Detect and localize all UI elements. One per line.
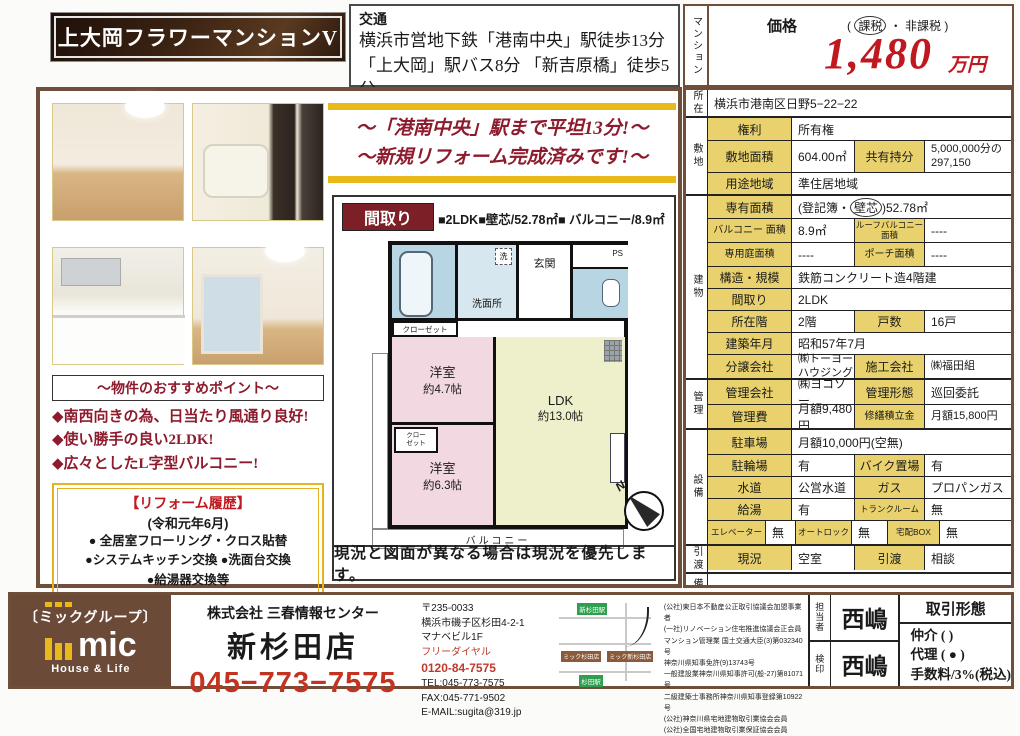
banner-line-1: 〜「港南中央」駅まで平坦13分!〜 [328, 115, 676, 144]
exclusive-area-value: (登記簿・壁芯)52.78㎡ [792, 196, 1011, 218]
deliverybox-value: 無 [940, 521, 1011, 544]
property-type-vertical-label: マンション [685, 6, 709, 85]
point-item: ◆使い勝手の良い2LDK! [52, 429, 324, 452]
layout-value: 2LDK [792, 289, 1011, 310]
mgmt-type-value: 巡回委託 [925, 380, 1011, 404]
price-box: マンション 価格 ( 課税 ・ 非課税 ) 1,480 万円 [683, 4, 1014, 87]
gold-bar-bottom [328, 176, 676, 183]
closet-2-label: クロー [406, 432, 426, 440]
range-hood [61, 258, 121, 286]
rights-value: 所有権 [792, 118, 1011, 140]
kitchen-counter-icon [610, 433, 625, 483]
mgmt-type-label: 管理形態 [855, 380, 925, 404]
ceiling-light [265, 240, 305, 262]
transport-label: 交通 [359, 9, 670, 29]
main-content-frame: 〜物件のおすすめポイント〜 ◆南西向きの為、日当たり風通り良好! ◆使い勝手の良… [36, 87, 682, 588]
exclusive-area-label: 専有面積 [708, 196, 792, 218]
repair-value: 月額15,800円 [925, 405, 1011, 428]
trunk-label: トランクルーム [855, 499, 925, 520]
garden-value: ---- [792, 243, 855, 266]
staff-column: 担当者 西嶋 検印 西嶋 [808, 595, 901, 686]
land-area-value: 604.00㎡ [792, 141, 855, 172]
ldk-room: LDK 約13.0帖 [496, 337, 625, 525]
status-value: 空室 [792, 546, 855, 570]
catch-copy-banner: 〜「港南中央」駅まで平坦13分!〜 〜新規リフォーム完成済みです!〜 [328, 103, 676, 183]
bike-value: 有 [925, 455, 1011, 476]
deliverybox-label: 宅配BOX [888, 521, 940, 544]
floorplan-drawing: バルコニー 洗 洗面所 玄関 PS クローゼット 洋室 約4.7帖 クロー ゼッ… [372, 241, 642, 541]
parking-label: 駐車場 [708, 430, 792, 454]
delivery-value: 相談 [925, 546, 1011, 570]
license-list: (公社)東日本不動産公正取引協議会加盟事業者 (一社)リノベーション住宅推進協議… [658, 595, 808, 686]
laundry-spot: 洗 [495, 248, 512, 265]
price-value: 1,480 [824, 28, 933, 79]
bathroom-room [392, 245, 458, 321]
license-line: マンション管理業 国土交通大臣(3)第032340号 [664, 636, 806, 658]
section-label-land: 敷地 [686, 118, 708, 194]
address-line-1: 横浜市磯子区杉田4-2-1 [421, 617, 553, 632]
units-value: 16戸 [925, 311, 1011, 332]
structure-label: 構造・規模 [708, 267, 792, 288]
units-label: 戸数 [855, 311, 925, 332]
repair-label: 修繕積立金 [855, 405, 925, 428]
entrance-label: 玄関 [519, 255, 570, 271]
section-equipment: 設備 駐車場 月額10,000円(空無) 駐輪場 有 バイク置場 有 水道 公営… [686, 428, 1011, 544]
built-label: 建築年月 [708, 333, 792, 354]
section-label-management: 管理 [686, 380, 708, 428]
kitchen-counter [53, 315, 185, 364]
points-header: 〜物件のおすすめポイント〜 [52, 375, 324, 401]
company-cell: 株式会社 三春情報センター 新杉田店 045−773−7575 [171, 595, 415, 686]
seal-name: 西嶋 [831, 642, 899, 687]
mgmt-fee-label: 管理費 [708, 405, 792, 428]
closet-1: クローゼット [392, 321, 458, 337]
email-address: E-MAIL:sugita@319.jp [421, 706, 553, 721]
floorplan-caption: 現況と図面が異なる場合は現況を優先します。 [334, 545, 674, 579]
zoning-value: 準住居地域 [792, 173, 1011, 194]
mic-logo-icon [45, 630, 72, 660]
hotwater-value: 有 [792, 499, 855, 520]
map-store-sugita: ミック杉田店 [561, 651, 601, 662]
garden-label: 専用庭面積 [708, 243, 792, 266]
washroom-label: 洗面所 [458, 295, 516, 310]
license-line: (公社)神奈川県宅地建物取引業協会会員 [664, 714, 806, 725]
stove-icon [604, 340, 622, 362]
point-item: ◆広々としたL字型バルコニー! [52, 453, 324, 476]
roof-balcony-label: ルーフバルコニー 面積 [855, 219, 925, 242]
spec-table: 所在 横浜市港南区日野5−22−22 敷地 権利 所有権 敷地面積 604.00… [683, 87, 1014, 588]
toilet-room [570, 269, 628, 321]
share-label: 共有持分 [855, 141, 925, 172]
toilet-icon [602, 279, 620, 307]
group-name: 〔ミックグループ〕 [24, 607, 158, 627]
bedroom-1-name: 洋室 [429, 362, 455, 381]
balcony-area-label: バルコニー 面積 [708, 219, 792, 242]
access-map: 新杉田駅 ミック新杉田店 ミック杉田店 杉田駅 [555, 595, 658, 686]
bedroom-photo [192, 247, 324, 365]
license-line: (公社)東日本不動産公正取引協議会加盟事業者 [664, 602, 806, 624]
elevator-label: エレベーター [708, 521, 766, 544]
remarks-value [708, 574, 1011, 588]
reform-item: ●システムキッチン交換 ●洗面台交換 [60, 551, 316, 570]
builder-value: ㈱福田組 [925, 355, 1011, 378]
bedroom-1: 洋室 約4.7帖 [392, 337, 496, 425]
rights-label: 権利 [708, 118, 792, 140]
deal-type-header: 取引形態 [900, 595, 1011, 624]
recommend-points: 〜物件のおすすめポイント〜 ◆南西向きの為、日当たり風通り良好! ◆使い勝手の良… [52, 375, 324, 602]
parking-value: 月額10,000円(空無) [792, 430, 1011, 454]
status-label: 現況 [708, 546, 792, 570]
reform-item: ● 全居室フローリング・クロス貼替 [60, 532, 316, 551]
branch-phone: 045−773−7575 [171, 667, 415, 700]
postal-code: 〒235-0033 [421, 602, 553, 617]
price-unit: 万円 [948, 50, 986, 77]
deal-type-box: 取引形態 仲介 ( ) 代理 ( ● ) 手数料/3%(税込) [900, 595, 1011, 686]
trunk-value: 無 [925, 499, 1011, 520]
bathtub [203, 144, 269, 198]
section-building: 建物 専有面積 (登記簿・壁芯)52.78㎡ バルコニー 面積 8.9㎡ ルーフ… [686, 194, 1011, 378]
floor-label: 所在階 [708, 311, 792, 332]
living-room-photo [52, 103, 184, 221]
map-road [559, 671, 651, 673]
ps-label: PS [612, 249, 623, 258]
deal-fee: 手数料/3%(税込) [910, 665, 1011, 685]
deal-brokerage: 仲介 ( ) [910, 626, 1011, 646]
license-line: 一般建設業神奈川県知事許可(般-27)第81071号 [664, 669, 806, 691]
transport-line-1: 横浜市営地下鉄「港南中央」駅徒歩13分 [359, 29, 670, 54]
porch-value: ---- [925, 243, 1011, 266]
section-remarks: 備考 [686, 572, 1011, 588]
floorplan-spec: ■2LDK■壁芯/52.78㎡■ バルコニー/8.9㎡ [438, 209, 665, 228]
deal-agency: 代理 ( ● ) [910, 645, 1011, 665]
builder-label: 施工会社 [855, 355, 925, 378]
section-handover: 引渡 現況 空室 引渡 相談 [686, 544, 1011, 572]
ldk-size: 約13.0帖 [496, 408, 625, 424]
ceiling-light [125, 96, 165, 118]
staff-name: 西嶋 [831, 595, 899, 640]
built-value: 昭和57年7月 [792, 333, 1011, 354]
address-cell: 〒235-0033 横浜市磯子区杉田4-2-1 マナベビル1F フリーダイヤル … [415, 595, 555, 686]
property-title: 上大岡フラワーマンションV [54, 16, 342, 58]
reform-item: ●給湯器交換等 [60, 571, 316, 590]
section-location: 所在 横浜市港南区日野5−22−22 [686, 90, 1011, 116]
layout-label: 間取り [708, 289, 792, 310]
developer-label: 分譲会社 [708, 355, 792, 378]
mic-logo-dots [45, 602, 72, 607]
floorplan-walls: 洗 洗面所 玄関 PS クローゼット 洋室 約4.7帖 クロー ゼット 洋室 約… [388, 241, 628, 529]
water-label: 水道 [708, 477, 792, 498]
balcony-side [372, 353, 388, 529]
delivery-label: 引渡 [855, 546, 925, 570]
footer: 〔ミックグループ〕 mic House & Life 株式会社 三春情報センター… [8, 592, 1014, 689]
map-rail-curve [613, 607, 649, 647]
section-label-building: 建物 [686, 196, 708, 378]
mgmt-co-label: 管理会社 [708, 380, 792, 404]
free-dial-label: フリーダイヤル [421, 646, 553, 661]
bathroom-photo [192, 103, 324, 221]
mic-brand-box: 〔ミックグループ〕 mic House & Life [11, 595, 171, 686]
section-label-location: 所在 [686, 90, 708, 116]
reform-history-box: 【リフォーム履歴】 (令和元年6月) ● 全居室フローリング・クロス貼替 ●シス… [52, 483, 324, 602]
land-area-label: 敷地面積 [708, 141, 792, 172]
address-line-2: マナベビル1F [421, 631, 553, 646]
property-title-box: 上大岡フラワーマンションV [50, 12, 346, 62]
map-station-sugita: 杉田駅 [579, 675, 603, 687]
floorplan-box: 間取り ■2LDK■壁芯/52.78㎡■ バルコニー/8.9㎡ バルコニー 洗 … [332, 195, 676, 581]
section-label-remarks: 備考 [686, 574, 708, 588]
bike-label: バイク置場 [855, 455, 925, 476]
kitchen-photo [52, 247, 184, 365]
license-line: (公社)全国宅地建物取引業保証協会会員 [664, 725, 806, 736]
section-land: 敷地 権利 所有権 敷地面積 604.00㎡ 共有持分 5,000,000分の … [686, 116, 1011, 194]
autolock-label: オートロック [796, 521, 852, 544]
roof-balcony-value: ---- [925, 219, 1011, 242]
balcony-area-value: 8.9㎡ [792, 219, 855, 242]
elevator-value: 無 [766, 521, 796, 544]
balcony-window [201, 274, 263, 354]
closet-2: クロー ゼット [394, 427, 438, 453]
free-dial-number: 0120-84-7575 [421, 660, 553, 677]
porch-label: ポーチ面積 [855, 243, 925, 266]
reform-date: (令和元年6月) [60, 513, 316, 532]
bicycle-value: 有 [792, 455, 855, 476]
exclusive-prefix: (登記簿・ [798, 199, 850, 216]
exclusive-circled: 壁芯 [850, 198, 882, 217]
compass-icon: N [616, 483, 664, 531]
ldk-name: LDK [496, 393, 625, 408]
washroom: 洗 洗面所 [458, 245, 516, 321]
closet-2-label: ゼット [406, 440, 426, 448]
section-label-handover: 引渡 [686, 546, 708, 572]
license-line: (一社)リノベーション住宅推進協議会正会員 [664, 624, 806, 635]
zoning-label: 用途地域 [708, 173, 792, 194]
point-item: ◆南西向きの為、日当たり風通り良好! [52, 406, 324, 429]
mgmt-fee-value: 月額9,480円 [792, 405, 855, 428]
bedroom-1-size: 約4.7帖 [423, 381, 462, 397]
transport-box: 交通 横浜市営地下鉄「港南中央」駅徒歩13分 「上大岡」駅バス8分 「新吉原橋」… [349, 4, 680, 87]
bedroom-2-name: 洋室 [429, 458, 455, 477]
gas-label: ガス [855, 477, 925, 498]
license-line: 二級建築士事務所神奈川県知事登録第10922号 [664, 692, 806, 714]
gas-value: プロパンガス [925, 477, 1011, 498]
license-line: 神奈川県知事免許(9)13743号 [664, 658, 806, 669]
section-label-equipment: 設備 [686, 430, 708, 544]
bicycle-label: 駐輪場 [708, 455, 792, 476]
bathtub-icon [399, 251, 433, 317]
exclusive-suffix: )52.78㎡ [882, 199, 928, 216]
mic-logo-text: mic [78, 632, 137, 659]
water-value: 公営水道 [792, 477, 855, 498]
pipe-space: PS [570, 245, 628, 269]
share-value: 5,000,000分の 297,150 [925, 141, 1011, 172]
location-value: 横浜市港南区日野5−22−22 [708, 90, 1011, 116]
price-cell: 価格 ( 課税 ・ 非課税 ) 1,480 万円 [709, 6, 1012, 85]
floor-value: 2階 [792, 311, 855, 332]
company-name: 株式会社 三春情報センター [171, 603, 415, 623]
gold-bar-top [328, 103, 676, 110]
hotwater-label: 給湯 [708, 499, 792, 520]
price-label: 価格 [767, 15, 797, 36]
mic-logo-subtext: House & Life [51, 663, 130, 675]
branch-name: 新杉田店 [171, 624, 415, 666]
map-station-shin-sugita: 新杉田駅 [577, 603, 607, 615]
staff-label: 担当者 [810, 595, 831, 640]
bedroom-2-size: 約6.3帖 [423, 477, 462, 493]
fax-number: FAX:045-771-9502 [421, 692, 553, 707]
floorplan-header: 間取り [342, 203, 434, 231]
map-store-shin-sugita: ミック新杉田店 [607, 651, 653, 662]
banner-line-2: 〜新規リフォーム完成済みです!〜 [328, 144, 676, 173]
autolock-value: 無 [852, 521, 888, 544]
map-road [559, 643, 651, 645]
structure-value: 鉄筋コンクリート造4階建 [792, 267, 1011, 288]
section-management: 管理 管理会社 ㈱ヨコソー 管理形態 巡回委託 管理費 月額9,480円 修繕積… [686, 378, 1011, 428]
entrance: 玄関 [516, 245, 570, 321]
seal-label: 検印 [810, 642, 831, 687]
reform-title: 【リフォーム履歴】 [60, 493, 316, 513]
tel-number: TEL:045-773-7575 [421, 677, 553, 692]
